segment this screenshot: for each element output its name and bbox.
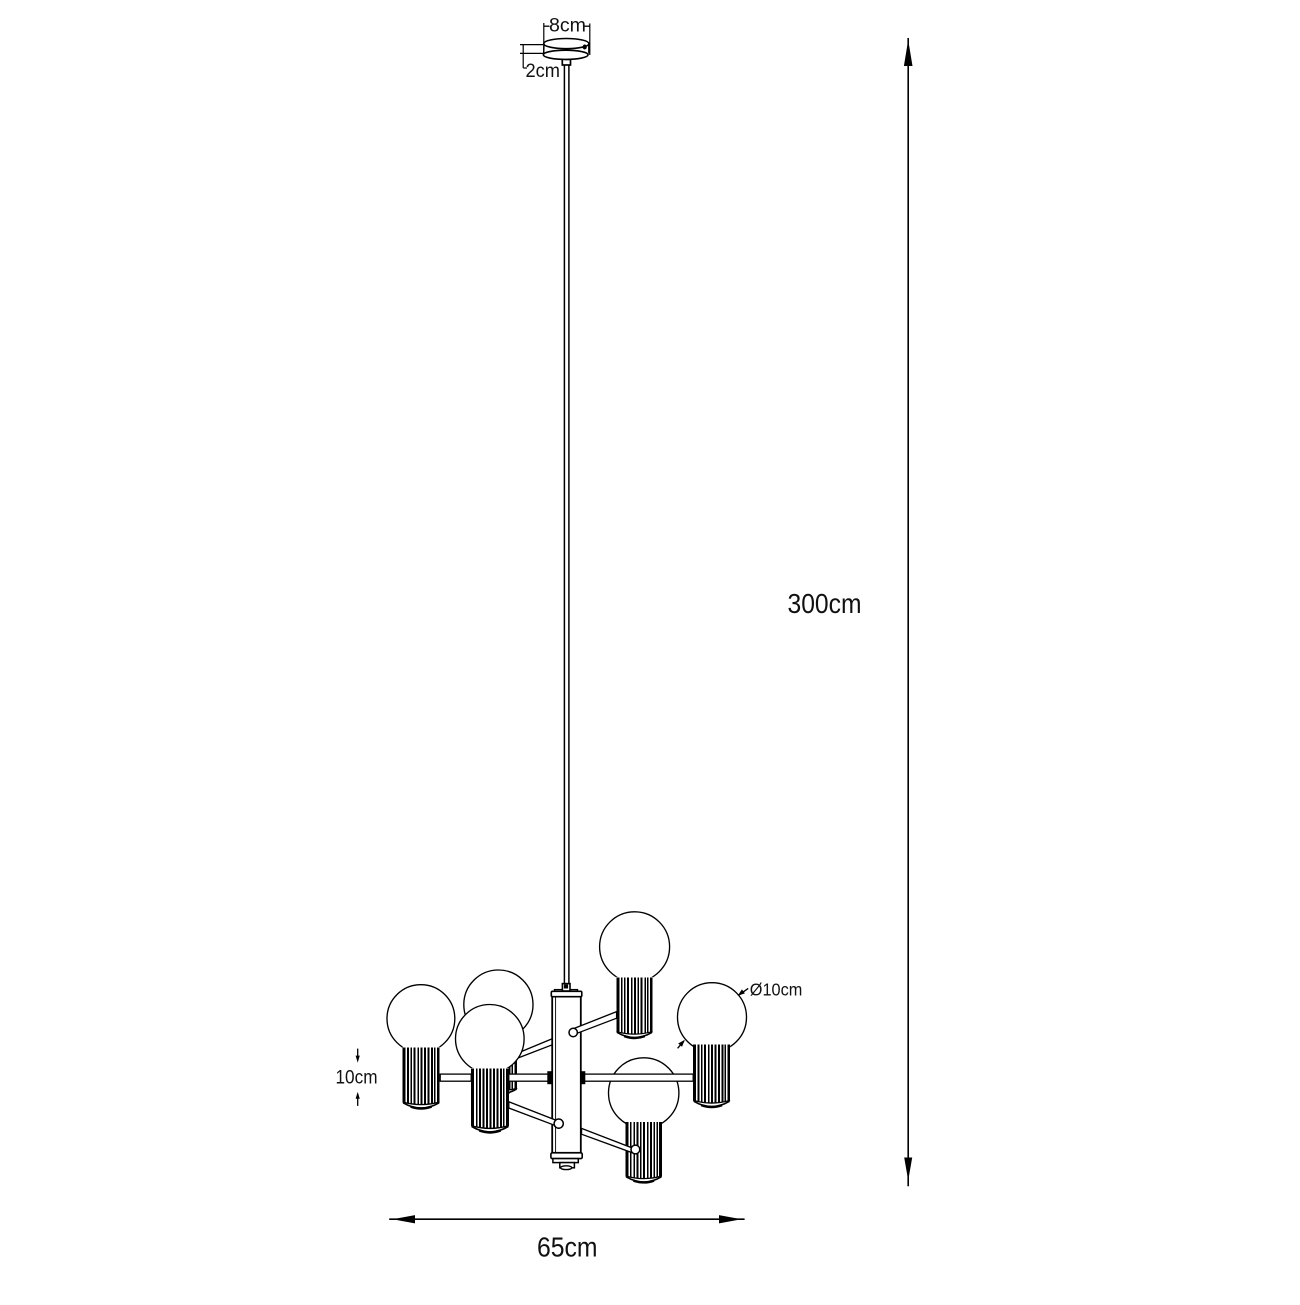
svg-text:Ø10cm: Ø10cm bbox=[750, 980, 803, 1000]
svg-text:300cm: 300cm bbox=[788, 588, 862, 619]
svg-text:10cm: 10cm bbox=[336, 1067, 378, 1088]
svg-text:2cm: 2cm bbox=[526, 61, 561, 82]
svg-text:8cm: 8cm bbox=[549, 16, 586, 37]
svg-text:65cm: 65cm bbox=[537, 1231, 598, 1262]
